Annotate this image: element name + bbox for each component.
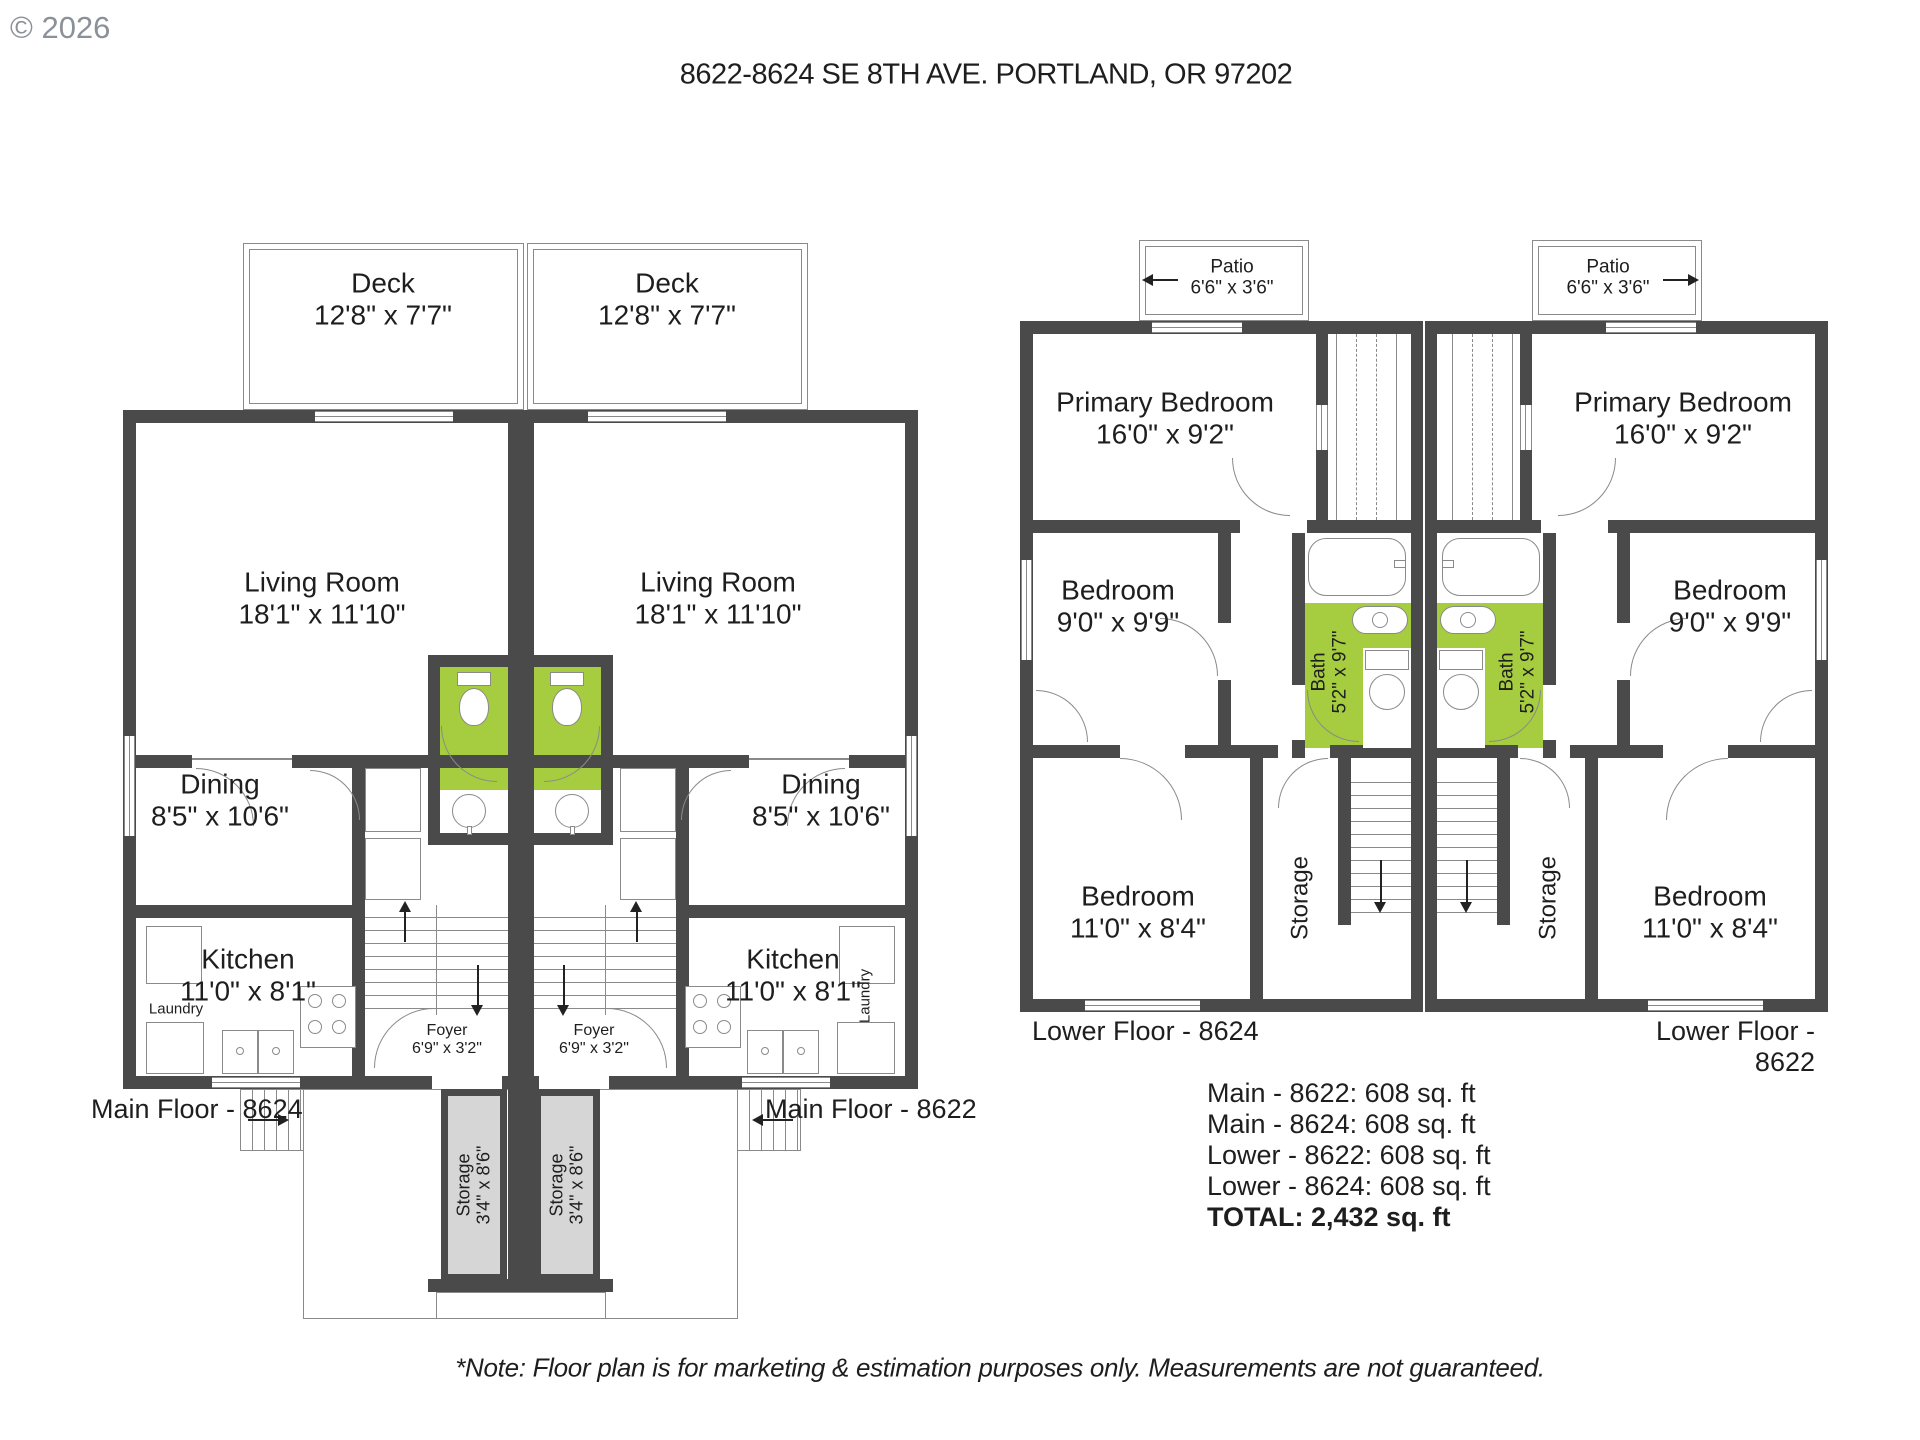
toilet-tank xyxy=(1439,650,1483,670)
wall-segment xyxy=(1292,533,1305,685)
window xyxy=(1816,560,1827,660)
wall-segment xyxy=(1250,758,1263,999)
wall-segment xyxy=(1497,758,1510,925)
stairs-up-arrow xyxy=(404,912,406,942)
wall-segment xyxy=(849,755,905,768)
stairs-up-arrow-head xyxy=(399,901,411,912)
bathroom-sink xyxy=(555,794,589,828)
window xyxy=(124,736,135,836)
door-swing-arc xyxy=(1558,458,1616,516)
laundry-label: Laundry xyxy=(149,1002,203,1019)
stairwell-line xyxy=(1396,334,1397,520)
summary-line: Main - 8622: 608 sq. ft xyxy=(1207,1078,1491,1109)
toilet-tank xyxy=(1365,650,1409,670)
sink-drain xyxy=(761,1047,769,1055)
stove-burner xyxy=(717,1020,731,1034)
stove-burner xyxy=(332,1020,346,1034)
wall-segment xyxy=(1543,533,1556,685)
stairs-down-arrow-head xyxy=(471,1005,483,1016)
patio-exit-arrow xyxy=(1663,279,1689,281)
toilet-bowl xyxy=(1443,674,1479,710)
sink-drain xyxy=(272,1047,280,1055)
floor-title-lower-8624: Lower Floor - 8624 xyxy=(1032,1016,1259,1047)
summary-line: Main - 8624: 608 sq. ft xyxy=(1207,1109,1491,1140)
stairwell-dashed-line xyxy=(1492,334,1493,520)
primary-bedroom-label: Primary Bedroom16'0" x 9'2" xyxy=(1056,386,1274,449)
stairwell-dashed-line xyxy=(1472,334,1473,520)
wall-segment xyxy=(1218,533,1231,623)
closet xyxy=(620,768,676,832)
patio-exit-arrow xyxy=(1152,279,1178,281)
floor-title-main-8622: Main Floor - 8622 xyxy=(765,1094,977,1125)
disclaimer-note: *Note: Floor plan is for marketing & est… xyxy=(455,1353,1545,1384)
foyer-label: Foyer6'9" x 3'2" xyxy=(559,1022,629,1058)
living-room-label: Living Room18'1" x 11'10" xyxy=(634,566,801,629)
window xyxy=(742,1077,830,1088)
stairs-down-arrow xyxy=(1380,860,1382,902)
bath-label: Bath5'2" x 9'7" xyxy=(1309,630,1352,713)
stairwell-dashed-line xyxy=(1376,334,1377,520)
patio-exit-arrow-head xyxy=(1142,274,1153,286)
living-room-label: Living Room18'1" x 11'10" xyxy=(238,566,405,629)
stairs-down-arrow xyxy=(563,965,565,1005)
sink-drain xyxy=(797,1047,805,1055)
wall-segment xyxy=(1815,321,1828,1012)
staircase-divider xyxy=(605,905,606,1015)
party-wall-seam xyxy=(1423,321,1425,1012)
stairs-down-arrow xyxy=(477,965,479,1005)
copyright-watermark: © 2026 xyxy=(10,10,110,46)
bedroom-label: Bedroom11'0" x 8'4" xyxy=(1070,880,1206,943)
stairwell-dashed-line xyxy=(1356,334,1357,520)
porch-landing-outline xyxy=(436,1292,606,1319)
summary-line: Lower - 8624: 608 sq. ft xyxy=(1207,1171,1491,1202)
summary-total: TOTAL: 2,432 sq. ft xyxy=(1207,1202,1491,1233)
stove-burner xyxy=(693,994,707,1008)
stairwell-line xyxy=(1452,334,1453,520)
dining-label: Dining8'5" x 10'6" xyxy=(752,768,890,831)
window xyxy=(1021,560,1032,660)
storage-label: Storage xyxy=(1286,856,1313,940)
door-swing-arc xyxy=(1232,458,1290,516)
wall-segment xyxy=(1728,745,1815,758)
wall-segment xyxy=(1543,740,1556,758)
bedroom-label: Bedroom9'0" x 9'9" xyxy=(1057,574,1179,637)
wall-segment xyxy=(1185,745,1278,758)
foyer-label: Foyer6'9" x 3'2" xyxy=(412,1022,482,1058)
toilet-bowl xyxy=(459,688,489,726)
closet xyxy=(365,838,421,900)
kitchen-label: Kitchen11'0" x 8'1" xyxy=(725,943,861,1006)
wall-segment xyxy=(428,1279,613,1292)
toilet-bowl xyxy=(552,688,582,726)
stairs-up-arrow xyxy=(636,912,638,942)
party-wall xyxy=(508,410,534,1290)
door-swing-arc xyxy=(1120,758,1182,820)
tub-faucet xyxy=(1394,560,1406,568)
floor-title-lower-8622: Lower Floor - 8622 xyxy=(1590,1016,1815,1078)
stove-burner xyxy=(693,1020,707,1034)
door-swing-arc xyxy=(1278,758,1328,808)
toilet-tank xyxy=(550,672,584,686)
wall-segment xyxy=(689,905,905,918)
closet xyxy=(620,838,676,900)
wall-segment xyxy=(136,905,352,918)
patio-label: Patio6'6" x 3'6" xyxy=(1190,257,1273,300)
staircase-divider xyxy=(436,905,437,1015)
square-footage-summary: Main - 8622: 608 sq. ft Main - 8624: 608… xyxy=(1207,1078,1491,1233)
primary-bedroom-label: Primary Bedroom16'0" x 9'2" xyxy=(1574,386,1792,449)
wall-segment xyxy=(1617,533,1630,623)
laundry-machine xyxy=(146,1022,204,1074)
wall-segment xyxy=(1437,520,1541,533)
window xyxy=(1648,1000,1763,1011)
closet xyxy=(365,768,421,832)
door-swing-arc xyxy=(1520,758,1570,808)
stairs-down-arrow-head xyxy=(1460,902,1472,913)
tub-faucet xyxy=(1442,560,1454,568)
wall-segment xyxy=(1020,321,1033,1012)
storage-label: Storage xyxy=(1534,856,1561,940)
sink-faucet xyxy=(467,826,472,835)
laundry-label: Laundry xyxy=(858,969,875,1023)
kitchen-label: Kitchen11'0" x 8'1" xyxy=(180,943,316,1006)
wall-segment xyxy=(1570,745,1663,758)
sink-faucet xyxy=(570,826,575,835)
deck-label: Deck12'8" x 7'7" xyxy=(598,267,736,330)
door-swing-arc xyxy=(1036,690,1088,742)
stairs-down-arrow xyxy=(1466,860,1468,902)
window xyxy=(212,1077,300,1088)
opening-header-line xyxy=(192,758,292,760)
wall-segment xyxy=(1307,520,1411,533)
bedroom-label: Bedroom11'0" x 8'4" xyxy=(1642,880,1778,943)
wall-segment xyxy=(136,755,192,768)
bathroom-sink xyxy=(452,794,486,828)
door-swing-arc xyxy=(1666,758,1728,820)
wall-segment xyxy=(1033,745,1120,758)
stairwell-line xyxy=(1512,334,1513,520)
sliding-door xyxy=(588,411,726,422)
dining-label: Dining8'5" x 10'6" xyxy=(151,768,289,831)
stove-burner xyxy=(308,1020,322,1034)
wall-segment xyxy=(601,655,613,845)
patio-label: Patio6'6" x 3'6" xyxy=(1566,257,1649,300)
sliding-door xyxy=(315,411,453,422)
patio-exit-arrow-head xyxy=(1688,274,1699,286)
wall-segment xyxy=(428,655,440,845)
page-title: 8622-8624 SE 8TH AVE. PORTLAND, OR 97202 xyxy=(680,59,1292,92)
wall-segment xyxy=(1292,740,1305,758)
storage-label: Storage3'4" x 8'6" xyxy=(547,1146,588,1225)
vanity-sink xyxy=(1372,612,1388,628)
wall-segment xyxy=(428,655,508,667)
floor-plan-canvas: © 2026 8622-8624 SE 8TH AVE. PORTLAND, O… xyxy=(0,0,1920,1440)
floor-title-main-8624: Main Floor - 8624 xyxy=(91,1094,303,1125)
stairs-down-arrow-head xyxy=(557,1005,569,1016)
sliding-door xyxy=(1606,322,1696,333)
storage-label: Storage3'4" x 8'6" xyxy=(454,1146,495,1225)
window xyxy=(1085,1000,1200,1011)
window xyxy=(906,736,917,836)
bedroom-label: Bedroom9'0" x 9'9" xyxy=(1669,574,1791,637)
sliding-door xyxy=(1152,322,1242,333)
window xyxy=(1316,405,1328,450)
stairs-down-arrow-head xyxy=(1374,902,1386,913)
toilet-tank xyxy=(457,672,491,686)
deck-label: Deck12'8" x 7'7" xyxy=(314,267,452,330)
window xyxy=(1520,405,1532,450)
vanity-sink xyxy=(1460,612,1476,628)
wall-segment xyxy=(1585,758,1598,999)
opening-header-line xyxy=(749,758,849,760)
bathtub xyxy=(1308,538,1406,596)
wall-segment xyxy=(1338,758,1351,925)
bathtub xyxy=(1442,538,1540,596)
bath-label: Bath5'2" x 9'7" xyxy=(1497,630,1540,713)
door-swing-arc xyxy=(1760,690,1812,742)
sink-drain xyxy=(236,1047,244,1055)
step-arrow-head xyxy=(752,1114,763,1126)
summary-line: Lower - 8622: 608 sq. ft xyxy=(1207,1140,1491,1171)
toilet-bowl xyxy=(1369,674,1405,710)
stairs-up-arrow-head xyxy=(630,901,642,912)
laundry-machine xyxy=(837,1022,895,1074)
wall-segment xyxy=(1033,520,1240,533)
stairwell-line xyxy=(1336,334,1337,520)
wall-segment xyxy=(1608,520,1815,533)
stove-burner xyxy=(332,994,346,1008)
